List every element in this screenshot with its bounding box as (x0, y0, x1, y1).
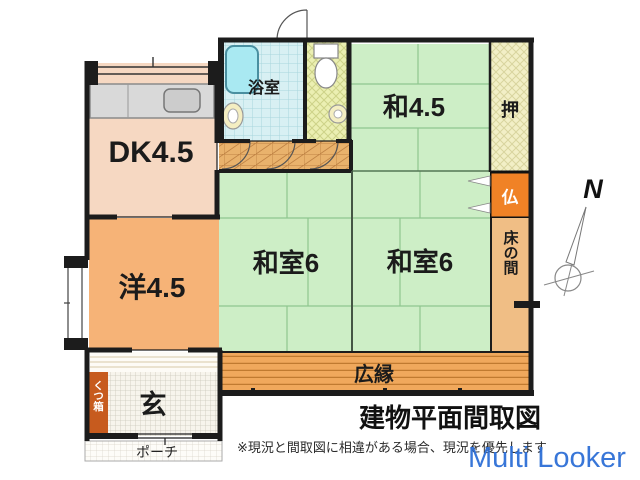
toilet-bowl-icon (315, 58, 337, 88)
compass-cross-line (544, 271, 594, 285)
plan-title: 建物平面間取図 (359, 403, 541, 433)
label-dk: DK4.5 (108, 136, 193, 169)
back-door-arc (277, 10, 307, 40)
hand-basin-inner (334, 110, 342, 118)
western-bay-window (64, 256, 88, 350)
label-shoe-box: くつ箱 (92, 380, 104, 412)
floor-plan-canvas: DK4.5 洋4.5 和4.5 和室6 和室6 浴室 押 仏 床の間 広縁 玄 … (0, 0, 640, 480)
toilet-tank-icon (314, 44, 338, 58)
hallway-floor (219, 141, 351, 171)
label-butsudan: 仏 (502, 188, 519, 207)
label-veranda: 広縁 (354, 362, 394, 386)
label-washitsu6-left: 和室6 (253, 248, 319, 278)
label-western: 洋4.5 (119, 271, 186, 303)
watermark-text: Multi Looker (468, 442, 626, 474)
compass-north-label: N (583, 174, 603, 204)
label-entrance: 玄 (140, 389, 167, 420)
label-closet: 押 (501, 99, 519, 120)
bath-drain-inner (228, 109, 238, 123)
compass-needle-icon (566, 207, 586, 265)
floor-plan-image: DK4.5 洋4.5 和4.5 和室6 和室6 浴室 押 仏 床の間 広縁 玄 … (0, 0, 640, 480)
compass: N (544, 174, 603, 296)
label-bathroom: 浴室 (248, 78, 280, 97)
label-porch: ポーチ (136, 444, 178, 460)
kitchen-sink-icon (164, 89, 200, 112)
label-washitsu45: 和4.5 (383, 92, 445, 122)
label-tokonoma: 床の間 (502, 229, 519, 276)
label-washitsu6-right: 和室6 (387, 247, 453, 277)
